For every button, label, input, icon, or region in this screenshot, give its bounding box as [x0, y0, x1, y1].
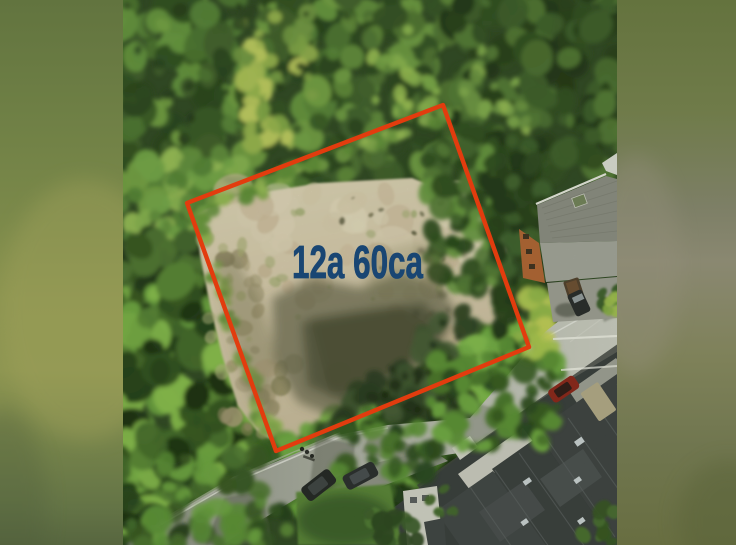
svg-text:12a 60ca: 12a 60ca: [292, 236, 423, 288]
